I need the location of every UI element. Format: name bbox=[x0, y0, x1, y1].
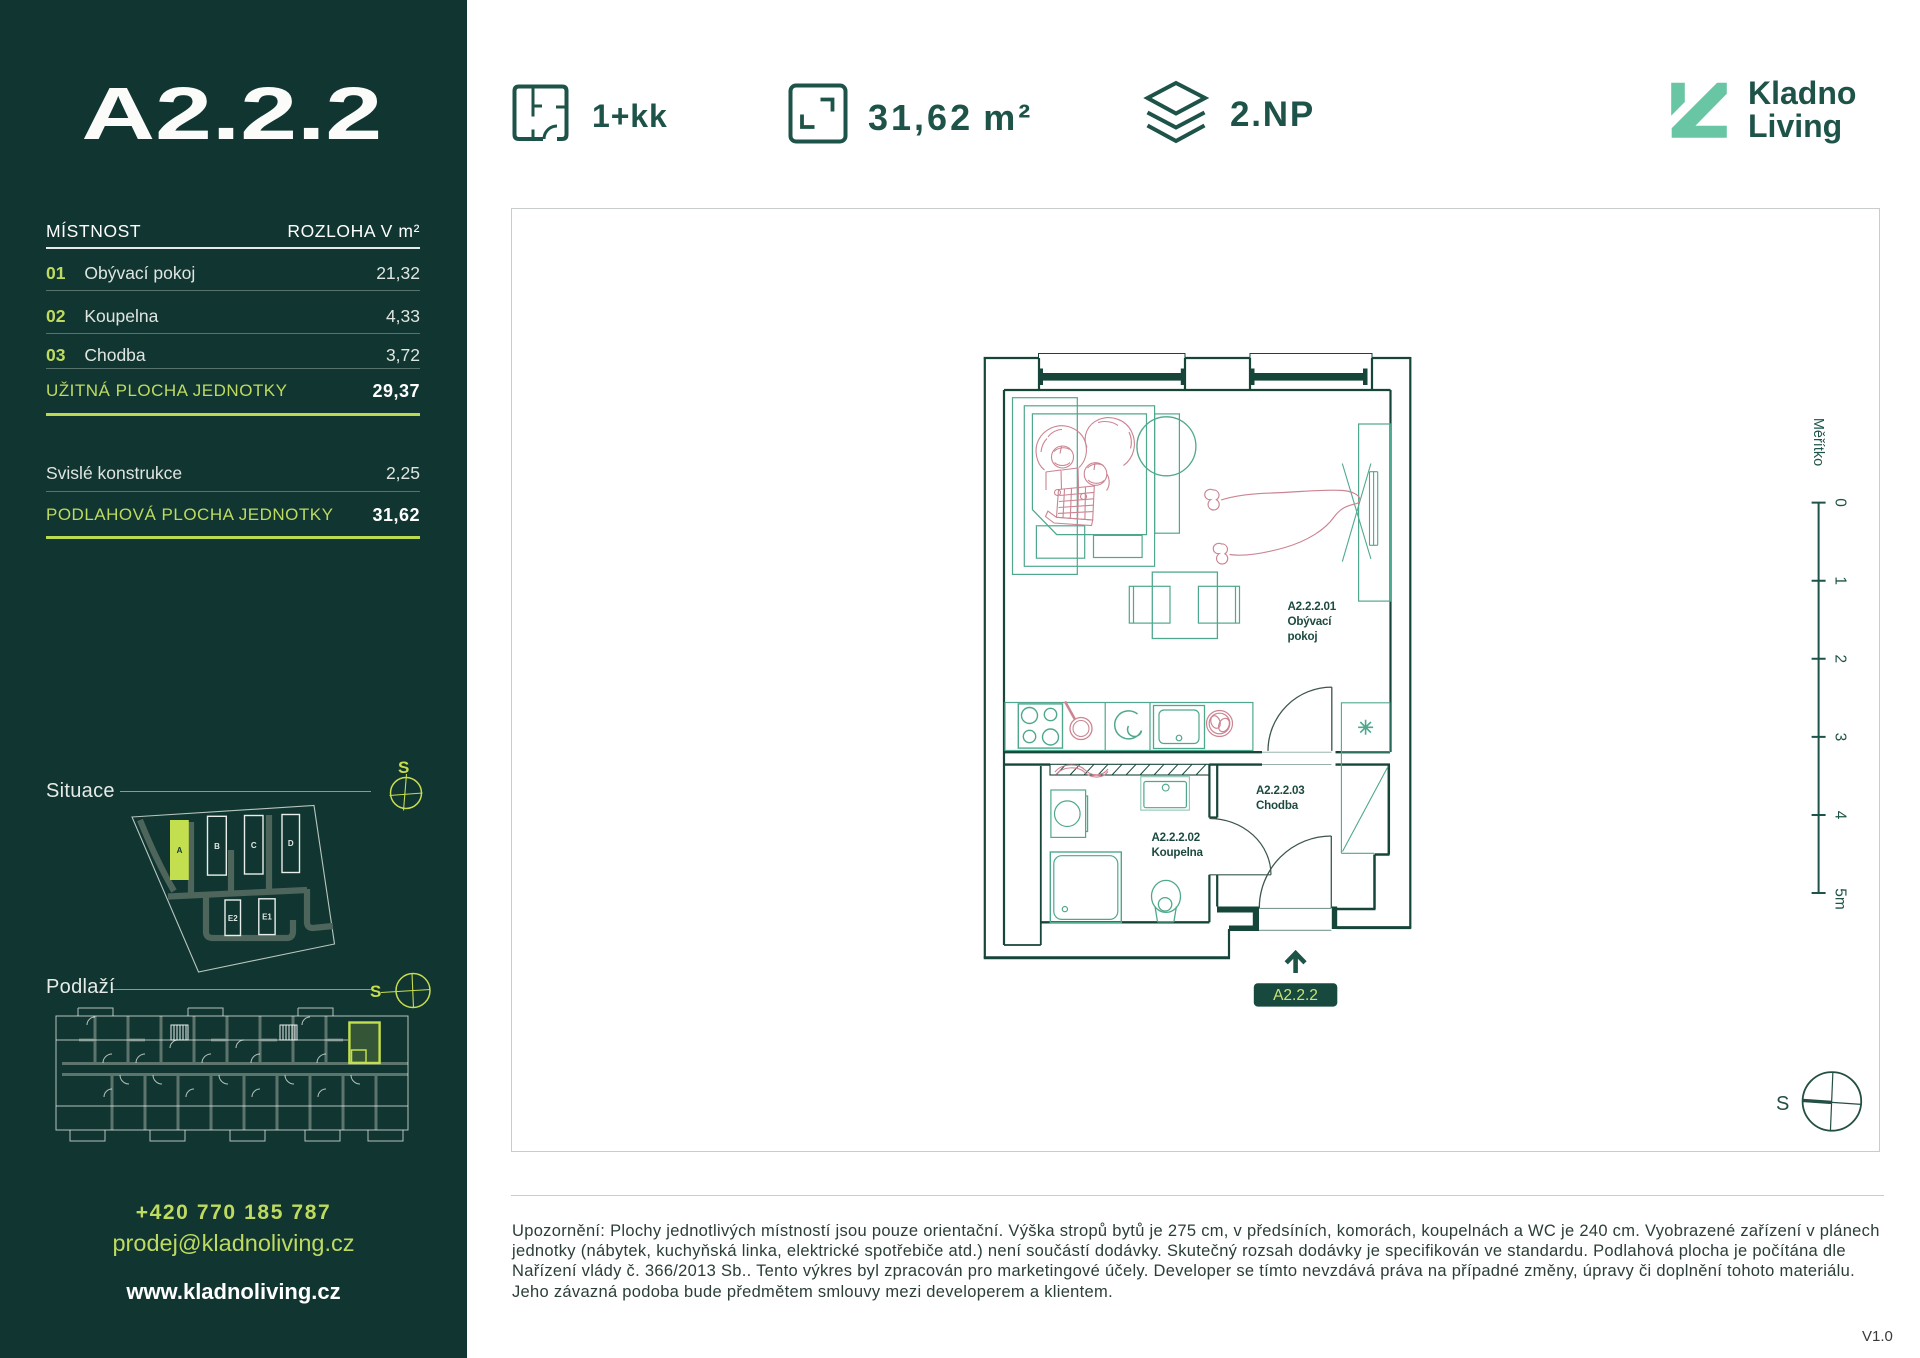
svg-text:2: 2 bbox=[1832, 654, 1849, 663]
svg-text:B: B bbox=[214, 842, 220, 851]
svg-text:4: 4 bbox=[1832, 811, 1849, 820]
svg-text:Chodba: Chodba bbox=[1256, 799, 1299, 812]
svg-text:Koupelna: Koupelna bbox=[1152, 846, 1204, 859]
svg-text:0: 0 bbox=[1832, 498, 1849, 507]
svg-text:E2: E2 bbox=[228, 914, 238, 923]
svg-text:A: A bbox=[177, 846, 183, 855]
svg-text:5m: 5m bbox=[1832, 888, 1849, 910]
svg-text:S: S bbox=[370, 982, 381, 1001]
svg-text:Měřítko: Měřítko bbox=[1810, 418, 1826, 466]
svg-text:E1: E1 bbox=[262, 913, 272, 922]
svg-text:D: D bbox=[288, 839, 294, 848]
svg-text:C: C bbox=[251, 841, 257, 850]
svg-text:1: 1 bbox=[1832, 576, 1849, 585]
svg-text:S: S bbox=[398, 758, 409, 777]
svg-text:3: 3 bbox=[1832, 733, 1849, 742]
svg-text:A2.2.2: A2.2.2 bbox=[1273, 987, 1318, 1004]
svg-text:Obývací: Obývací bbox=[1288, 615, 1333, 628]
svg-text:A2.2.2.03: A2.2.2.03 bbox=[1256, 784, 1305, 797]
svg-text:S: S bbox=[1776, 1093, 1789, 1115]
svg-text:A2.2.2.02: A2.2.2.02 bbox=[1152, 831, 1200, 844]
svg-text:pokoj: pokoj bbox=[1288, 630, 1318, 643]
svg-text:A2.2.2.01: A2.2.2.01 bbox=[1288, 600, 1337, 613]
